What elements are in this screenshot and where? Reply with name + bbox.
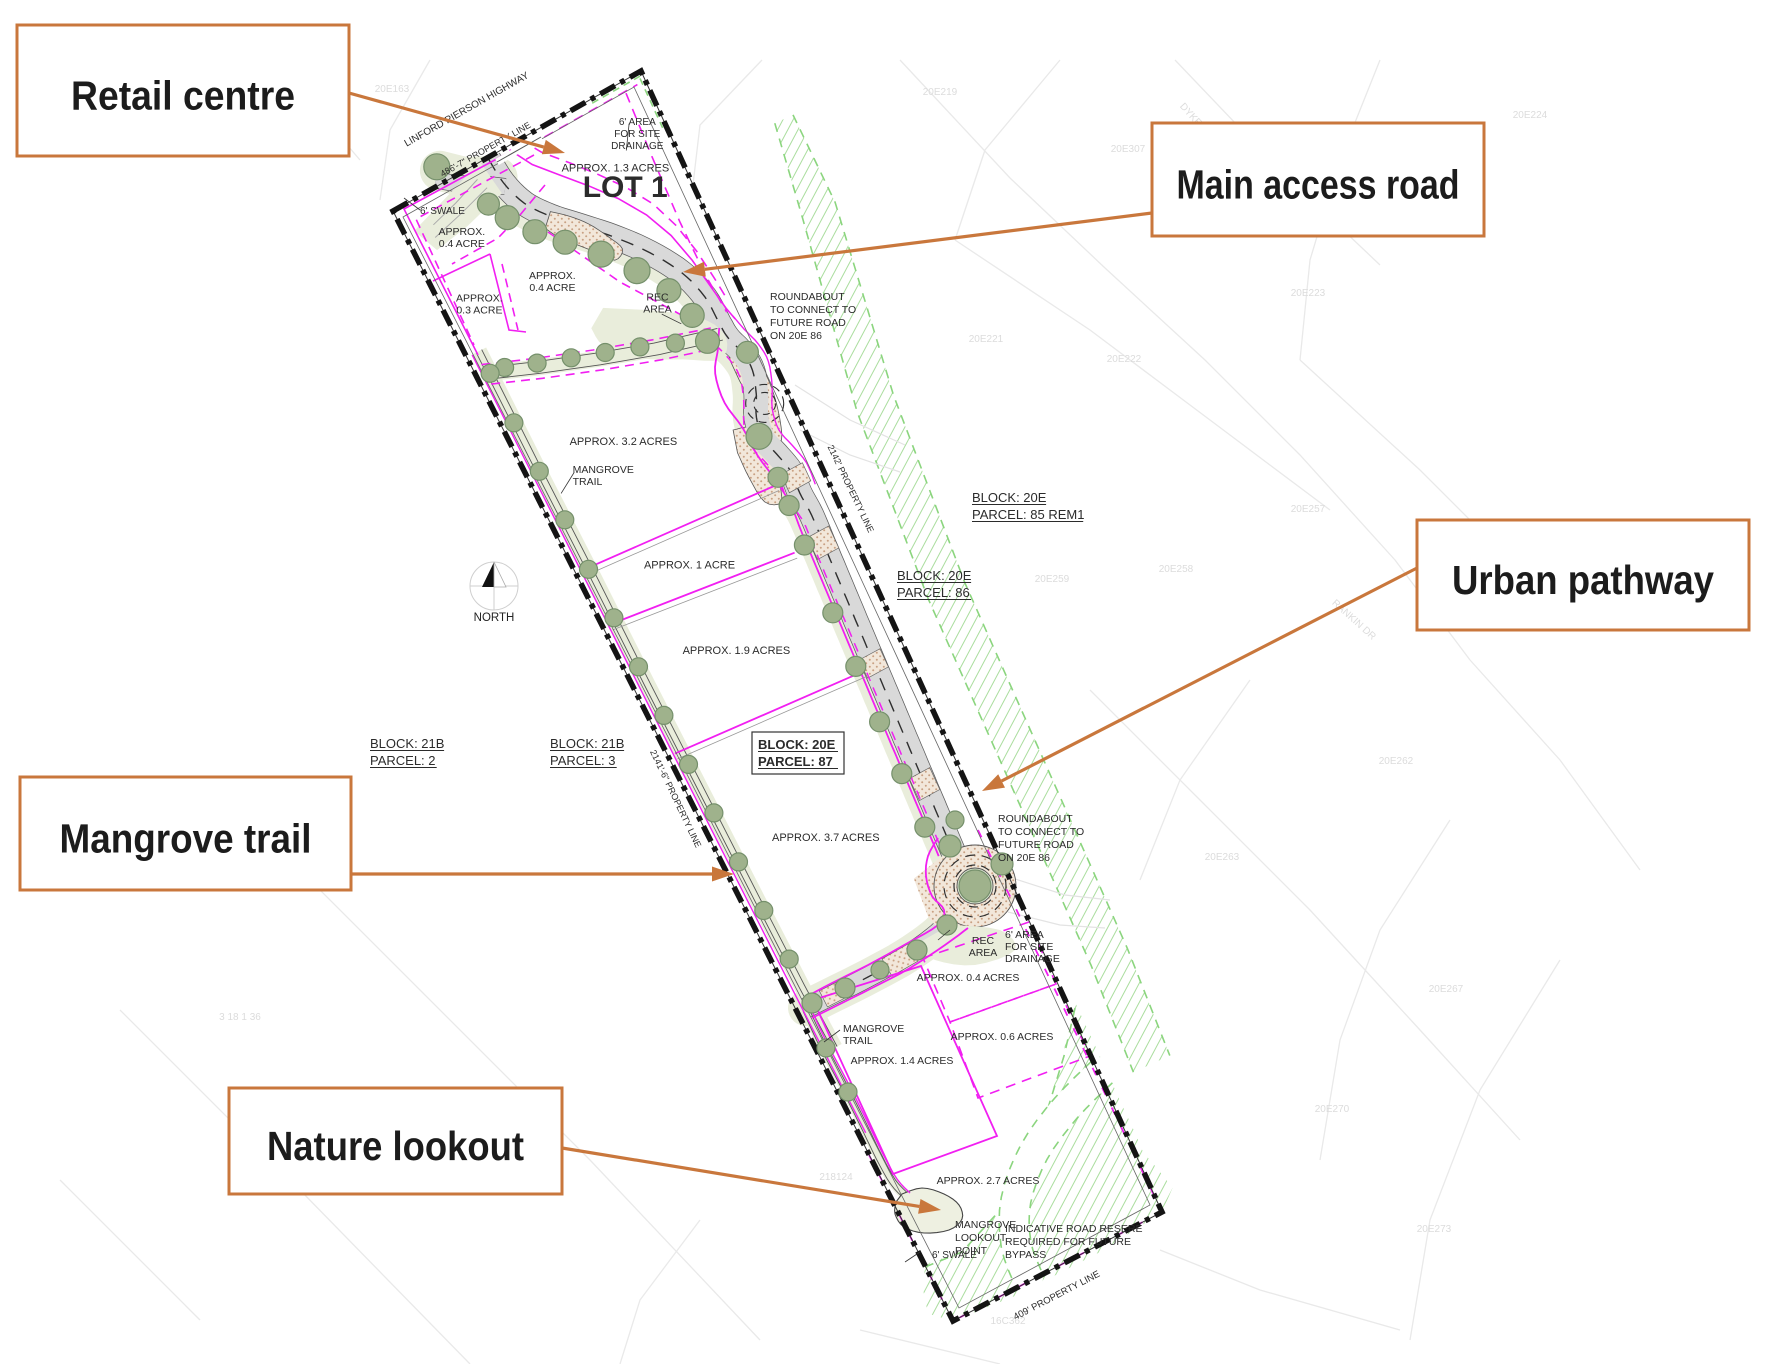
svg-text:APPROX. 3.2 ACRES: APPROX. 3.2 ACRES <box>570 436 678 448</box>
svg-text:BLOCK: 21B: BLOCK: 21B <box>550 736 624 751</box>
svg-text:6' AREA: 6' AREA <box>1005 929 1044 941</box>
svg-text:20E163: 20E163 <box>375 84 410 95</box>
svg-text:APPROX. 1.9 ACRES: APPROX. 1.9 ACRES <box>683 645 791 657</box>
svg-text:3 18 1 36: 3 18 1 36 <box>219 1012 261 1023</box>
svg-text:DRAINAGE: DRAINAGE <box>611 141 664 152</box>
svg-text:ON 20E 86: ON 20E 86 <box>770 330 822 342</box>
svg-text:ROUNDABOUT: ROUNDABOUT <box>770 291 845 303</box>
svg-text:6' SWALE: 6' SWALE <box>420 206 465 217</box>
svg-text:REC: REC <box>972 935 995 947</box>
svg-text:PARCEL: 3: PARCEL: 3 <box>550 753 616 768</box>
svg-text:FOR SITE: FOR SITE <box>1005 941 1053 953</box>
svg-text:TO CONNECT TO: TO CONNECT TO <box>770 304 856 316</box>
svg-text:APPROX. 1 ACRE: APPROX. 1 ACRE <box>644 559 735 571</box>
svg-text:FUTURE ROAD: FUTURE ROAD <box>770 317 846 329</box>
svg-text:20E224: 20E224 <box>1513 110 1548 121</box>
svg-text:20E307: 20E307 <box>1111 144 1146 155</box>
svg-text:PARCEL: 85 REM1: PARCEL: 85 REM1 <box>972 507 1084 522</box>
svg-text:6' SWALE: 6' SWALE <box>932 1250 977 1261</box>
svg-text:20E262: 20E262 <box>1379 756 1414 767</box>
svg-text:TRAIL: TRAIL <box>843 1035 873 1047</box>
svg-text:FUTURE ROAD: FUTURE ROAD <box>998 839 1074 851</box>
svg-text:MANGROVE: MANGROVE <box>843 1023 904 1035</box>
svg-text:MANGROVE: MANGROVE <box>573 464 634 476</box>
svg-text:LOOKOUT: LOOKOUT <box>955 1232 1007 1244</box>
svg-text:ROUNDABOUT: ROUNDABOUT <box>998 813 1073 825</box>
svg-text:20E257: 20E257 <box>1291 504 1326 515</box>
svg-text:0.4 ACRE: 0.4 ACRE <box>529 282 575 294</box>
svg-text:BLOCK: 20E: BLOCK: 20E <box>758 737 836 752</box>
svg-text:Main access road: Main access road <box>1177 161 1460 207</box>
svg-text:20E219: 20E219 <box>923 87 958 98</box>
svg-text:TO CONNECT TO: TO CONNECT TO <box>998 826 1084 838</box>
svg-text:218124: 218124 <box>819 1172 853 1183</box>
svg-text:APPROX. 0.4 ACRES: APPROX. 0.4 ACRES <box>917 972 1020 984</box>
svg-text:Nature lookout: Nature lookout <box>267 1123 524 1169</box>
svg-text:0.3 ACRE: 0.3 ACRE <box>456 305 502 317</box>
svg-text:0.4 ACRE: 0.4 ACRE <box>439 238 485 250</box>
svg-text:FOR SITE: FOR SITE <box>614 129 660 140</box>
svg-text:PARCEL: 86: PARCEL: 86 <box>897 585 970 600</box>
svg-text:BLOCK: 21B: BLOCK: 21B <box>370 736 444 751</box>
svg-text:APPROX.: APPROX. <box>438 226 485 238</box>
svg-text:APPROX. 2.7 ACRES: APPROX. 2.7 ACRES <box>937 1175 1040 1187</box>
svg-text:BYPASS: BYPASS <box>1005 1249 1046 1261</box>
svg-text:Retail centre: Retail centre <box>71 72 295 118</box>
svg-text:APPROX. 0.6 ACRES: APPROX. 0.6 ACRES <box>951 1031 1054 1043</box>
svg-text:DRAINAGE: DRAINAGE <box>1005 953 1060 965</box>
svg-text:BLOCK: 20E: BLOCK: 20E <box>972 490 1047 505</box>
svg-text:ON 20E 86: ON 20E 86 <box>998 852 1050 864</box>
svg-text:20E259: 20E259 <box>1035 574 1070 585</box>
svg-text:20E263: 20E263 <box>1205 852 1240 863</box>
svg-text:Urban pathway: Urban pathway <box>1452 557 1714 603</box>
svg-text:20E223: 20E223 <box>1291 288 1326 299</box>
svg-text:APPROX. 3.7 ACRES: APPROX. 3.7 ACRES <box>772 832 880 844</box>
svg-text:6' AREA: 6' AREA <box>619 117 656 128</box>
svg-text:AREA: AREA <box>643 303 672 315</box>
svg-text:INDICATIVE ROAD RESERE: INDICATIVE ROAD RESERE <box>1005 1223 1143 1235</box>
svg-text:PARCEL: 2: PARCEL: 2 <box>370 753 436 768</box>
svg-text:APPROX.: APPROX. <box>529 270 576 282</box>
svg-text:20E267: 20E267 <box>1429 984 1464 995</box>
svg-text:BLOCK: 20E: BLOCK: 20E <box>897 568 972 583</box>
svg-text:20E273: 20E273 <box>1417 1224 1452 1235</box>
svg-text:NORTH: NORTH <box>474 612 515 624</box>
svg-text:PARCEL: 87: PARCEL: 87 <box>758 754 833 769</box>
svg-text:REC: REC <box>646 291 669 303</box>
svg-text:20E221: 20E221 <box>969 334 1004 345</box>
svg-text:AREA: AREA <box>969 947 998 959</box>
svg-text:REQUIRED FOR FUTURE: REQUIRED FOR FUTURE <box>1005 1236 1131 1248</box>
svg-text:TRAIL: TRAIL <box>573 476 603 488</box>
svg-text:Mangrove trail: Mangrove trail <box>60 815 312 861</box>
svg-text:LOT 1: LOT 1 <box>583 171 668 204</box>
svg-text:20E222: 20E222 <box>1107 354 1142 365</box>
svg-text:20E270: 20E270 <box>1315 1104 1350 1115</box>
svg-text:20E258: 20E258 <box>1159 564 1194 575</box>
svg-text:APPROX.: APPROX. <box>456 293 503 305</box>
svg-text:APPROX. 1.4 ACRES: APPROX. 1.4 ACRES <box>851 1055 954 1067</box>
